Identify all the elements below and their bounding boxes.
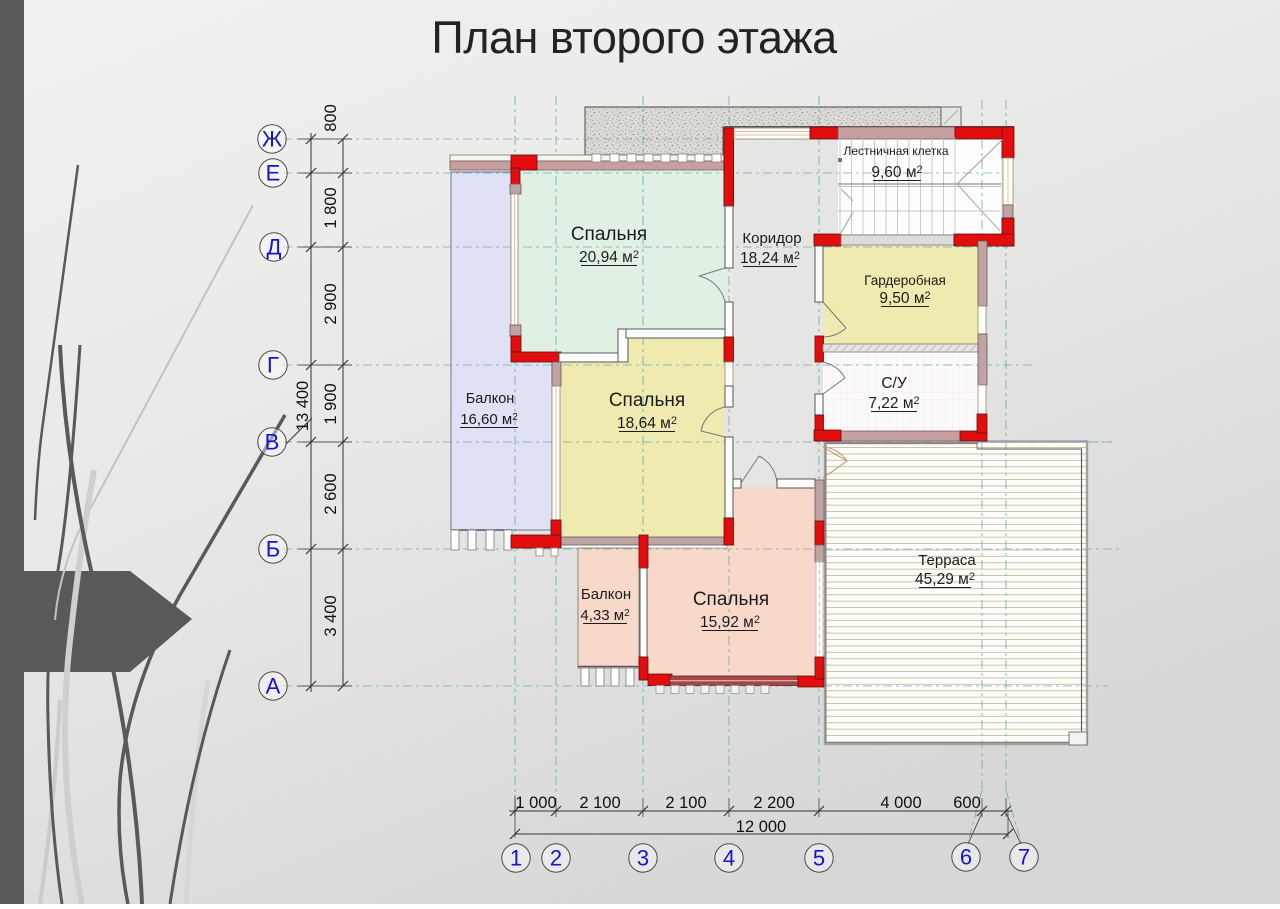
svg-text:13 400: 13 400 — [294, 381, 312, 431]
svg-text:15,92 м2: 15,92 м2 — [700, 614, 760, 631]
svg-text:12 000: 12 000 — [736, 818, 786, 836]
svg-text:45,29 м2: 45,29 м2 — [915, 571, 975, 588]
svg-text:2: 2 — [550, 846, 562, 871]
svg-text:4 000: 4 000 — [880, 794, 921, 812]
svg-text:2 100: 2 100 — [665, 794, 706, 812]
svg-text:План второго этажа: План второго этажа — [431, 12, 838, 63]
svg-text:2 200: 2 200 — [753, 794, 794, 812]
svg-text:3 400: 3 400 — [322, 595, 340, 636]
svg-text:С/У: С/У — [881, 375, 907, 392]
svg-text:Д: Д — [267, 235, 282, 260]
svg-text:Лестничная клетка: Лестничная клетка — [843, 144, 948, 158]
svg-text:20,94 м2: 20,94 м2 — [579, 249, 639, 266]
svg-text:7,22 м2: 7,22 м2 — [868, 395, 919, 412]
svg-text:Б: Б — [266, 537, 280, 562]
svg-text:7: 7 — [1018, 845, 1030, 870]
svg-text:1 000: 1 000 — [515, 794, 556, 812]
svg-text:Гардеробная: Гардеробная — [864, 273, 946, 288]
svg-text:Терраса: Терраса — [918, 552, 976, 569]
svg-text:3: 3 — [637, 846, 649, 871]
svg-text:Спальня: Спальня — [571, 224, 647, 245]
svg-text:Коридор: Коридор — [742, 230, 801, 247]
svg-text:Е: Е — [266, 161, 281, 186]
svg-text:2 100: 2 100 — [579, 794, 620, 812]
svg-text:9,50 м2: 9,50 м2 — [879, 290, 930, 307]
svg-text:1: 1 — [510, 846, 522, 871]
svg-text:Спальня: Спальня — [693, 589, 769, 610]
svg-text:9,60 м2: 9,60 м2 — [871, 164, 922, 181]
svg-text:4: 4 — [723, 846, 735, 871]
svg-text:А: А — [266, 674, 281, 699]
svg-text:4,33 м2: 4,33 м2 — [580, 607, 630, 624]
svg-text:Г: Г — [267, 353, 279, 378]
svg-text:Ж: Ж — [262, 127, 283, 152]
svg-text:2 600: 2 600 — [322, 473, 340, 514]
svg-text:18,24 м2: 18,24 м2 — [740, 250, 800, 267]
svg-text:2 900: 2 900 — [322, 283, 340, 324]
svg-text:Балкон: Балкон — [581, 586, 631, 603]
svg-text:5: 5 — [813, 846, 825, 871]
svg-text:16,60 м2: 16,60 м2 — [460, 411, 518, 428]
svg-text:1 800: 1 800 — [322, 187, 340, 228]
svg-text:Балкон: Балкон — [466, 391, 515, 407]
svg-text:Спальня: Спальня — [609, 390, 685, 411]
svg-text:6: 6 — [960, 845, 972, 870]
svg-text:В: В — [265, 430, 280, 455]
svg-text:600: 600 — [953, 794, 981, 812]
svg-text:800: 800 — [322, 104, 340, 132]
svg-text:18,64 м2: 18,64 м2 — [617, 415, 677, 432]
svg-text:1 900: 1 900 — [322, 383, 340, 424]
